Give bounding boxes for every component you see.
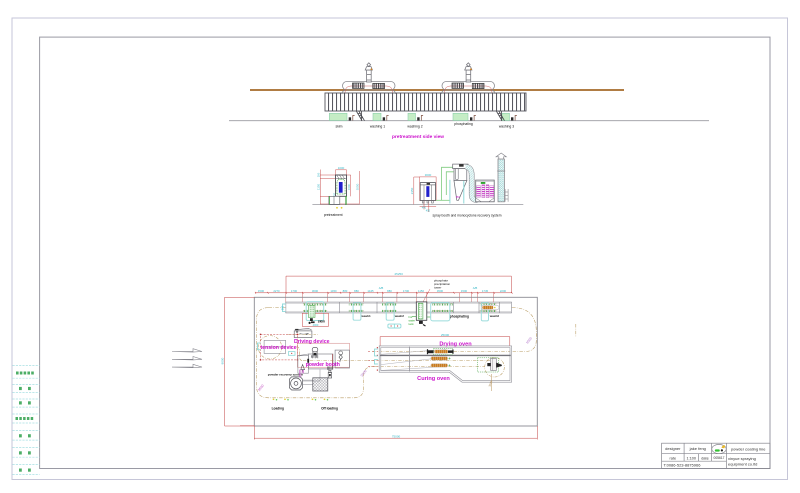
svg-text:1150: 1150 <box>418 289 424 293</box>
svg-text:powder coating line: powder coating line <box>731 446 766 451</box>
svg-text:designer: designer <box>665 446 681 451</box>
svg-text:1500: 1500 <box>347 184 351 190</box>
svg-text:Curing oven: Curing oven <box>417 376 450 382</box>
svg-text:Driving device: Driving device <box>294 339 330 345</box>
svg-text:hot: hot <box>409 315 413 319</box>
svg-text:1150: 1150 <box>317 184 321 191</box>
svg-text:1745: 1745 <box>482 289 489 293</box>
svg-text:T:0086-523-8875966: T:0086-523-8875966 <box>664 463 702 468</box>
svg-text:4000: 4000 <box>313 323 319 327</box>
svg-text:wash3: wash3 <box>489 314 500 318</box>
svg-text:washing 1: washing 1 <box>370 125 385 129</box>
svg-text:wash2: wash2 <box>394 314 405 318</box>
svg-text:wash1: wash1 <box>361 314 372 318</box>
svg-text:300: 300 <box>280 305 284 310</box>
svg-text:880: 880 <box>343 289 348 293</box>
svg-text:200: 200 <box>317 172 321 177</box>
svg-text:washing 3: washing 3 <box>499 125 514 129</box>
svg-text:3550: 3550 <box>356 183 360 190</box>
svg-text:2200: 2200 <box>500 289 507 293</box>
svg-text:phosphating: phosphating <box>454 122 473 126</box>
svg-text:3000: 3000 <box>425 173 432 177</box>
svg-text:jake feng: jake feng <box>689 446 706 451</box>
svg-text:880: 880 <box>354 289 359 293</box>
svg-text:25250: 25250 <box>395 272 404 276</box>
svg-text:equipment co.ltd: equipment co.ltd <box>728 462 757 467</box>
svg-text:1445: 1445 <box>367 289 374 293</box>
svg-text:powder booth: powder booth <box>306 362 340 368</box>
svg-text:skim: skim <box>318 319 325 323</box>
svg-text:date: date <box>701 456 708 460</box>
svg-text:1450: 1450 <box>330 289 337 293</box>
svg-text:1700: 1700 <box>291 289 298 293</box>
svg-text:pretreatment: pretreatment <box>324 213 343 217</box>
svg-text:xinyue spraying: xinyue spraying <box>728 456 756 461</box>
svg-text:A/B: A/B <box>473 286 478 290</box>
svg-text:880: 880 <box>387 289 392 293</box>
svg-text:powder recovery system: powder recovery system <box>268 372 304 376</box>
svg-text:Loading: Loading <box>272 406 284 410</box>
svg-text:Off loading: Off loading <box>321 406 338 410</box>
svg-text:3000: 3000 <box>312 289 319 293</box>
svg-text:2350: 2350 <box>410 187 414 194</box>
svg-text:water: water <box>409 319 416 323</box>
svg-text:8000: 8000 <box>221 357 225 364</box>
svg-text:005617: 005617 <box>713 456 724 460</box>
svg-text:2270: 2270 <box>273 289 280 293</box>
svg-text:spray booth and monocyclone re: spray booth and monocyclone recovery sys… <box>433 213 502 217</box>
svg-text:1700: 1700 <box>403 289 410 293</box>
svg-text:washing 2: washing 2 <box>407 125 422 129</box>
svg-text:rate: rate <box>670 456 677 460</box>
svg-text:4500: 4500 <box>437 289 444 293</box>
svg-text:450: 450 <box>426 209 431 213</box>
svg-text:Drying oven: Drying oven <box>439 341 472 347</box>
svg-text:skim: skim <box>336 125 343 129</box>
svg-text:tension device: tension device <box>261 345 297 351</box>
svg-text:1500: 1500 <box>461 289 468 293</box>
svg-text:pretreatment side view: pretreatment side view <box>392 134 444 140</box>
svg-text:tower: tower <box>434 285 441 289</box>
svg-text:phosphating: phosphating <box>450 314 469 318</box>
svg-text:1000: 1000 <box>338 166 345 170</box>
svg-text:1500: 1500 <box>258 289 265 293</box>
svg-text:75000: 75000 <box>392 434 401 438</box>
svg-text:tank: tank <box>409 322 415 326</box>
svg-text:A/B: A/B <box>379 286 384 290</box>
svg-text:25000: 25000 <box>441 333 450 337</box>
svg-text:1:100: 1:100 <box>687 456 697 460</box>
